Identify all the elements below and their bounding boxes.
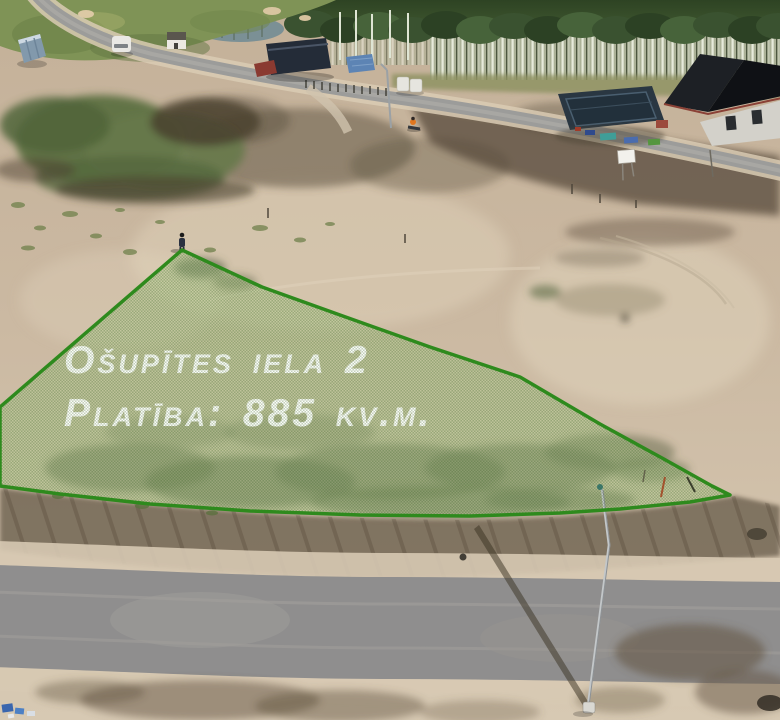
blue-tarp [346,54,375,73]
sand-pile [263,7,281,15]
plot-street-address: Ošupītes iela 2 [64,341,432,380]
white-tanks [396,77,424,96]
manhole [460,554,467,561]
aerial-photo: Ošupītes iela 2 Platība: 885 kv.m. [0,0,780,720]
plot-area-text: Platība: 885 kv.m. [64,394,432,433]
dark-object [747,528,767,540]
sand-pile [299,15,311,21]
white-van [111,36,133,57]
shed [167,32,186,49]
plot-label: Ošupītes iela 2 Platība: 885 kv.m. [64,341,432,433]
lamp-head [597,484,603,490]
